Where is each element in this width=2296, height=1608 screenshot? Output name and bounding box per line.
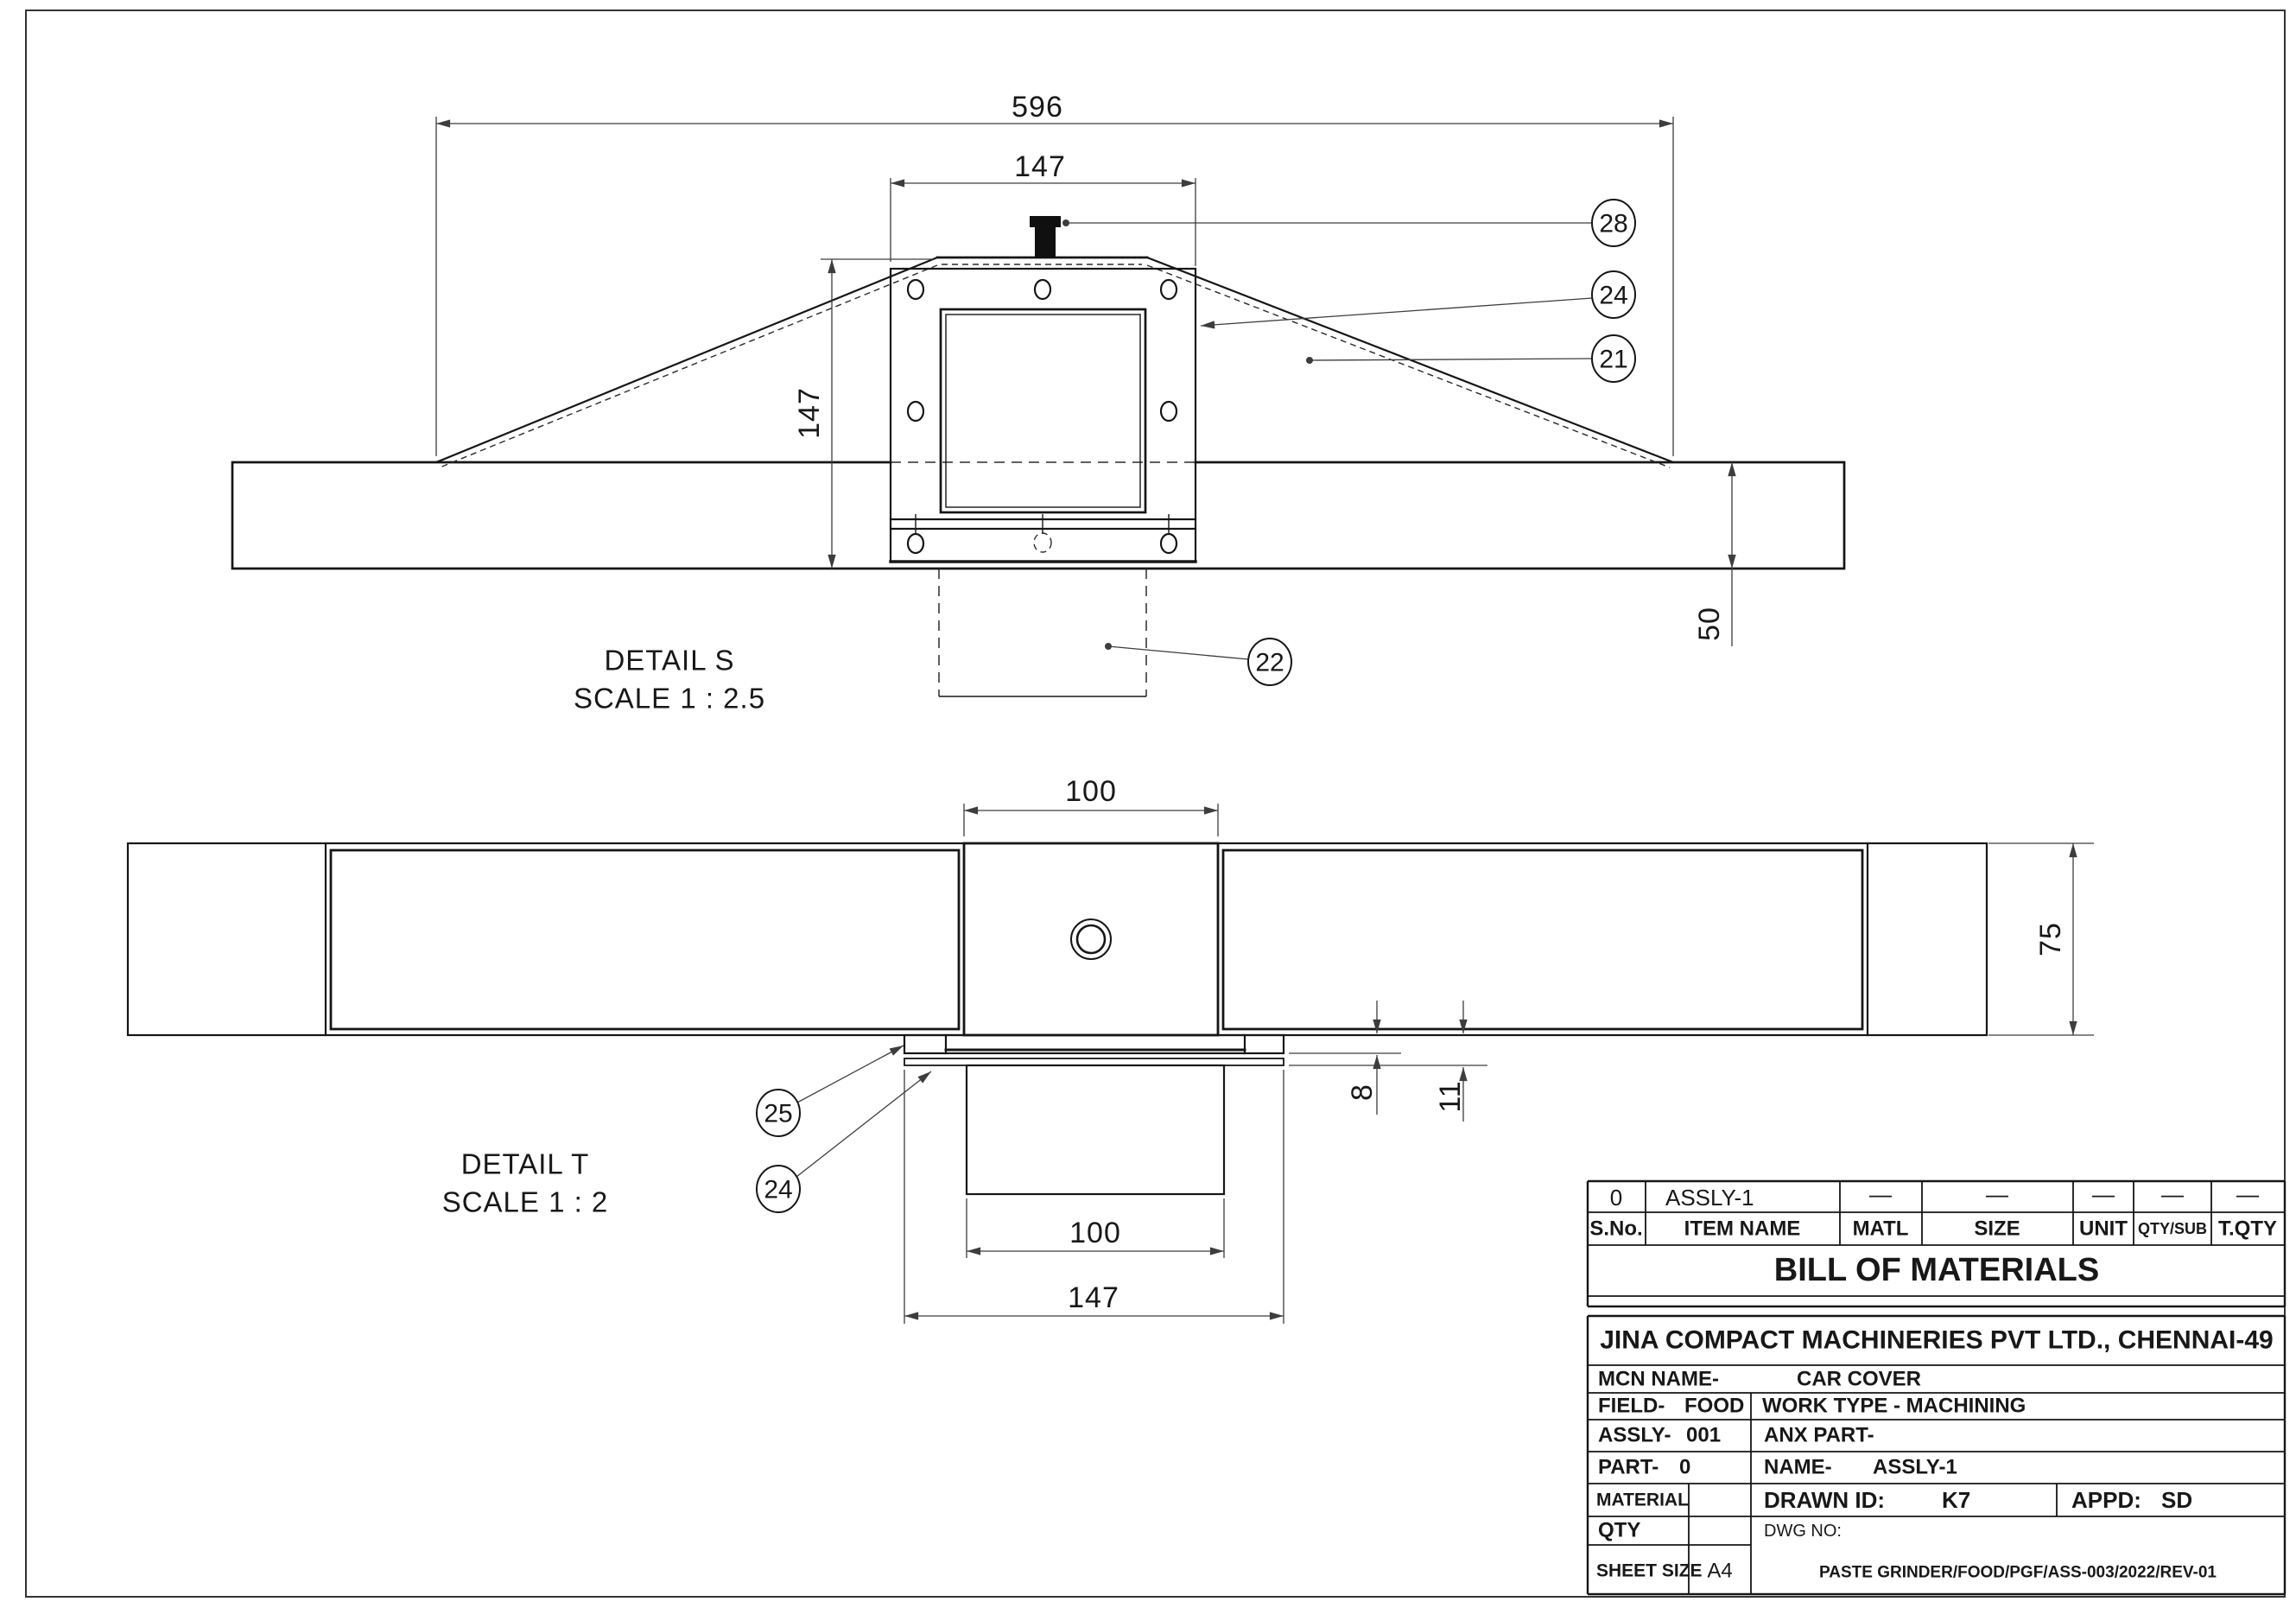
field-label: FIELD- xyxy=(1598,1395,1665,1418)
dimension-height-75: 75 xyxy=(1988,843,2094,1035)
dwg-number: PASTE GRINDER/FOOD/PGF/ASS-003/2022/REV-… xyxy=(1819,1564,2217,1582)
sheet-value: A4 xyxy=(1707,1560,1732,1583)
housing-block xyxy=(891,269,1196,562)
right-tube xyxy=(1218,843,1987,1035)
material-label: MATERIAL xyxy=(1596,1490,1689,1510)
detail-s-label: DETAIL S SCALE 1 : 2.5 xyxy=(574,645,765,715)
appd-value: SD xyxy=(2161,1487,2192,1513)
detail-s-title: DETAIL S xyxy=(604,645,734,677)
thin-plate xyxy=(904,1058,1284,1065)
dimension-offset-8: 8 xyxy=(1289,1001,1401,1115)
balloon-25: 25 xyxy=(757,1046,904,1136)
dim-50: 50 xyxy=(1693,607,1726,641)
work-type: WORK TYPE - MACHINING xyxy=(1762,1395,2026,1418)
detail-t-view: 100 75 8 11 100 xyxy=(128,775,2094,1324)
bom-header-tqty: T.QTY xyxy=(2218,1217,2277,1241)
left-tube xyxy=(128,843,964,1035)
bom-header-item: ITEM NAME xyxy=(1684,1217,1801,1241)
bom-header-matl: MATL xyxy=(1853,1217,1909,1241)
bom-cell-qtysub: — xyxy=(2161,1181,2184,1207)
dim-100-square: 100 xyxy=(1065,775,1117,808)
dimension-overall-596: 596 xyxy=(436,91,1673,456)
balloon-24-t-number: 24 xyxy=(764,1176,792,1204)
dimension-flange-147: 147 xyxy=(904,1070,1284,1324)
cad-drawing: 596 147 147 50 28 2 xyxy=(0,0,2296,1608)
balloon-22: 22 xyxy=(1105,639,1291,685)
dim-100-lower: 100 xyxy=(1069,1217,1121,1249)
mcn-label: MCN NAME- xyxy=(1598,1368,1719,1391)
sheet-border xyxy=(26,10,2285,1597)
assly-label: ASSLY- xyxy=(1598,1424,1671,1447)
bom-cell-item: ASSLY-1 xyxy=(1665,1185,1754,1211)
dimension-square-100: 100 xyxy=(964,775,1218,836)
bom-header-qtysub: QTY/SUB xyxy=(2138,1220,2207,1237)
dim-147-flange: 147 xyxy=(1068,1281,1119,1314)
dim-147-width: 147 xyxy=(1014,150,1066,183)
base-plate xyxy=(232,462,1844,569)
bom-header-size: SIZE xyxy=(1974,1217,2020,1241)
flange xyxy=(904,1035,1284,1053)
balloon-24-s-number: 24 xyxy=(1599,282,1627,310)
bom-table: 0 ASSLY-1 — — — — — S.No. ITEM NAME MATL… xyxy=(1588,1181,2285,1306)
balloon-28: 28 xyxy=(1062,200,1635,246)
detail-s-scale: SCALE 1 : 2.5 xyxy=(574,683,765,715)
bom-cell-sno: 0 xyxy=(1610,1185,1622,1211)
part-value: 0 xyxy=(1679,1456,1690,1479)
anx-label: ANX PART- xyxy=(1764,1424,1874,1447)
balloon-22-number: 22 xyxy=(1255,649,1284,677)
balloon-21-number: 21 xyxy=(1599,346,1627,374)
part-label: PART- xyxy=(1598,1456,1659,1479)
detail-t-scale: SCALE 1 : 2 xyxy=(442,1186,609,1218)
assly-value: 001 xyxy=(1686,1424,1721,1447)
detail-t-label: DETAIL T SCALE 1 : 2 xyxy=(442,1148,609,1218)
dimension-height-147: 147 xyxy=(793,259,933,569)
cover-sheet xyxy=(436,257,1673,467)
dimension-base-50: 50 xyxy=(1693,462,1732,646)
dwg-label: DWG NO: xyxy=(1764,1522,1842,1541)
drawn-label: DRAWN ID: xyxy=(1764,1487,1885,1513)
clamp-bolt xyxy=(1030,216,1061,258)
detail-t-title: DETAIL T xyxy=(461,1148,590,1180)
lower-block xyxy=(967,1065,1224,1194)
bom-cell-matl: — xyxy=(1869,1181,1892,1207)
dim-11: 11 xyxy=(1434,1080,1467,1112)
bom-cell-tqty: — xyxy=(2236,1181,2259,1207)
appd-label: APPD: xyxy=(2071,1487,2141,1513)
field-value: FOOD xyxy=(1684,1395,1744,1418)
bom-cell-unit: — xyxy=(2092,1181,2115,1207)
company-name: JINA COMPACT MACHINERIES PVT LTD., CHENN… xyxy=(1600,1326,2274,1355)
dimension-offset-11: 11 xyxy=(1289,1001,1487,1122)
dim-147-height: 147 xyxy=(793,387,826,439)
drawing-sheet: 596 147 147 50 28 2 xyxy=(0,0,2296,1608)
sheet-label: SHEET SIZE xyxy=(1596,1561,1703,1581)
balloon-24-s: 24 xyxy=(1201,271,1635,326)
mcn-value: CAR COVER xyxy=(1797,1368,1921,1391)
qty-label: QTY xyxy=(1598,1519,1640,1542)
window-opening xyxy=(941,309,1145,512)
detail-s-view: 596 147 147 50 28 2 xyxy=(232,91,1844,715)
center-housing xyxy=(964,843,1218,1035)
dimension-lower-100: 100 xyxy=(967,1198,1224,1258)
bom-title: BILL OF MATERIALS xyxy=(1774,1252,2099,1288)
bom-cell-size: — xyxy=(1986,1181,2008,1207)
drawn-value: K7 xyxy=(1942,1487,1970,1513)
title-block: JINA COMPACT MACHINERIES PVT LTD., CHENN… xyxy=(1588,1316,2285,1594)
balloon-21: 21 xyxy=(1306,335,1635,382)
dim-596: 596 xyxy=(1012,91,1063,124)
balloon-24-t: 24 xyxy=(757,1071,931,1212)
balloon-28-number: 28 xyxy=(1599,210,1627,238)
bom-header-sno: S.No. xyxy=(1589,1217,1642,1241)
bom-header-unit: UNIT xyxy=(2079,1217,2128,1241)
dim-75: 75 xyxy=(2034,922,2067,957)
hidden-block-below-base xyxy=(939,569,1146,696)
name-value: ASSLY-1 xyxy=(1873,1456,1957,1479)
balloon-25-number: 25 xyxy=(764,1100,792,1128)
name-label: NAME- xyxy=(1764,1456,1832,1479)
dim-8: 8 xyxy=(1346,1084,1379,1101)
